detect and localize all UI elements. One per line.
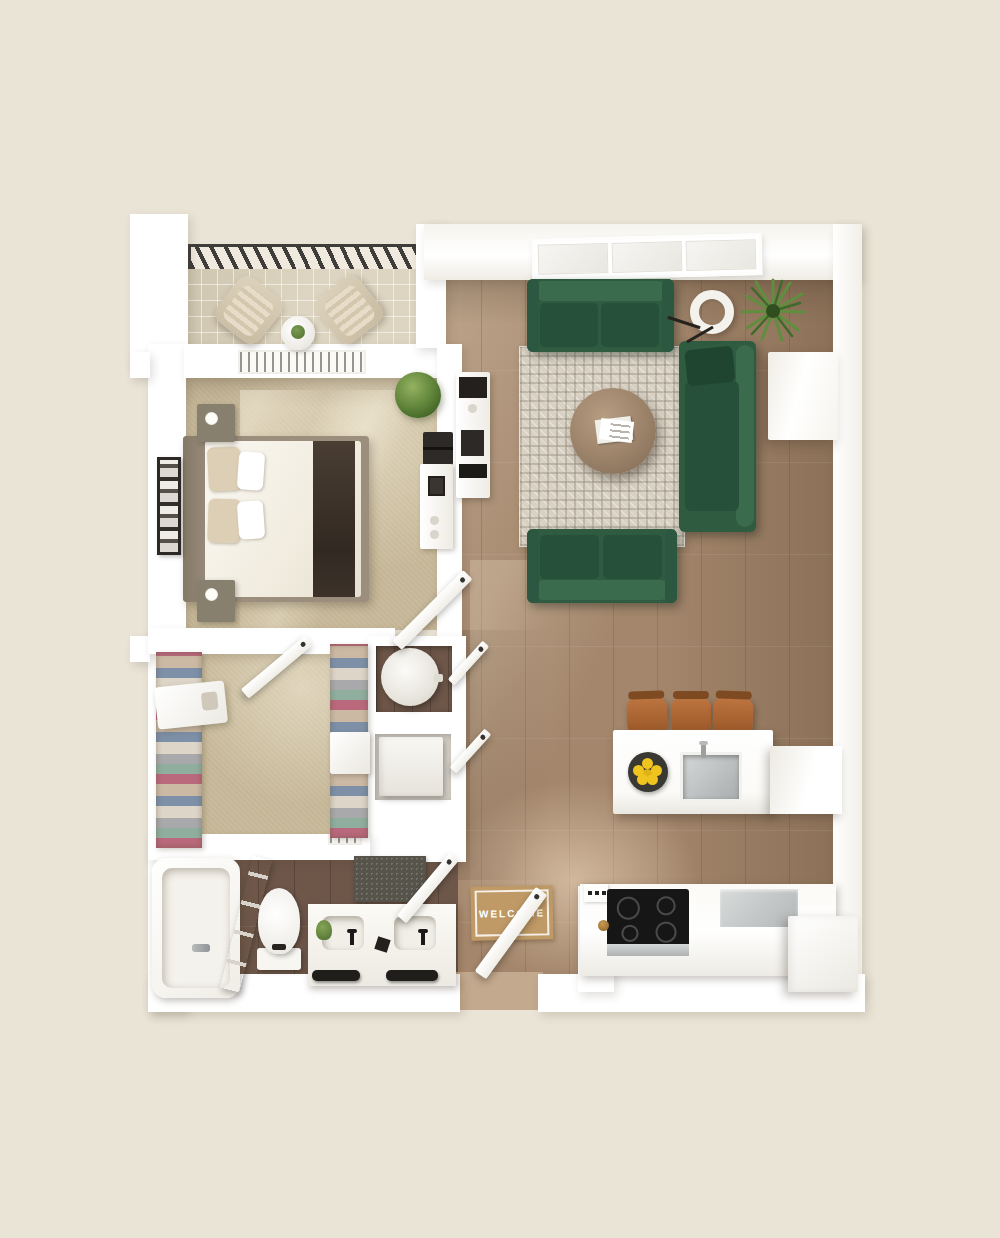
vanity-faucet <box>350 932 354 945</box>
refrigerator <box>788 916 858 992</box>
console-table <box>456 372 490 498</box>
hvac-vent <box>238 350 366 374</box>
wall-art <box>157 457 181 555</box>
pillow <box>207 446 241 492</box>
pillow <box>207 498 241 543</box>
living-room-window <box>531 233 762 281</box>
vanity-sink <box>394 916 436 950</box>
floor-plan: WELCOME <box>0 0 1000 1238</box>
sofa-cushion <box>540 303 598 347</box>
loveseat <box>527 529 677 603</box>
window-pane <box>538 243 609 275</box>
wall <box>130 636 150 662</box>
dishwasher <box>720 889 798 927</box>
pillow <box>237 500 266 540</box>
towel-bar <box>312 970 360 981</box>
console-electronics <box>459 377 487 398</box>
towel-bar <box>386 970 438 981</box>
sofa-cushion <box>603 535 662 579</box>
cooktop <box>607 889 689 949</box>
dresser <box>423 432 453 465</box>
sofa-cushion <box>540 535 599 579</box>
kitchen-faucet-brass <box>598 920 609 931</box>
lemon-bowl <box>628 752 668 792</box>
sofa-cushion <box>601 303 659 347</box>
potted-plant <box>395 372 441 418</box>
desk <box>420 464 453 549</box>
tub-faucet <box>192 944 210 952</box>
corner-shelf <box>154 680 228 729</box>
sofa-pillow <box>684 346 736 387</box>
media-cabinet <box>768 352 838 440</box>
sofa-arm <box>665 529 677 603</box>
sofa-back <box>533 580 671 600</box>
console-electronics <box>459 464 487 478</box>
vanity-plant <box>316 920 332 940</box>
wall <box>130 352 150 378</box>
vanity-faucet <box>421 932 425 945</box>
corner-sofa <box>679 341 756 532</box>
ring-floor-lamp <box>690 290 734 334</box>
toilet-hinge <box>272 944 286 950</box>
balcony-side-table <box>281 316 315 350</box>
console-electronics <box>461 430 484 456</box>
balcony-railing <box>187 244 423 269</box>
bed-throw-runner <box>313 441 355 597</box>
nightstand <box>197 404 235 442</box>
wire-shelving <box>156 652 202 848</box>
island-faucet <box>701 744 706 758</box>
nightstand <box>197 580 235 622</box>
headboard <box>183 436 205 602</box>
window-pane <box>686 239 757 271</box>
pillow <box>237 451 266 491</box>
wall <box>833 224 862 996</box>
spider-plant <box>738 276 808 346</box>
sofa-arm <box>527 529 539 603</box>
island-sink <box>680 752 742 802</box>
bar-stool <box>671 698 711 734</box>
sofa-back <box>533 281 668 301</box>
water-heater <box>381 648 439 706</box>
magazine <box>599 418 634 443</box>
washer-dryer <box>379 737 443 796</box>
sofa-arm <box>527 279 539 352</box>
entry-threshold-floor <box>455 972 543 1010</box>
console-item <box>468 404 477 413</box>
oven-front <box>607 944 689 956</box>
sofa-cushion <box>685 381 739 511</box>
sofa <box>527 279 674 352</box>
storage-box <box>330 732 370 774</box>
range-vent <box>584 884 608 902</box>
peninsula-counter <box>770 746 842 814</box>
window-pane <box>612 241 683 273</box>
